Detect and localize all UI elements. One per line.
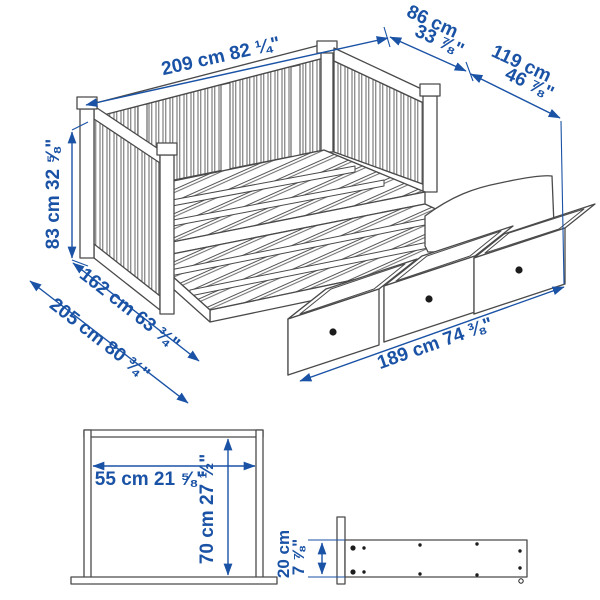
back-wide-slat bbox=[291, 65, 300, 159]
dim-depth: 86 cm 33 ⅞" bbox=[390, 1, 473, 81]
dim-height-label: 83 cm 32 ⅝" bbox=[43, 139, 64, 249]
dim-tick bbox=[72, 260, 88, 266]
back-wide-slat bbox=[221, 83, 230, 173]
back-left-post bbox=[80, 109, 94, 258]
drawer-rail-side-diagram: 20 cm 7 ⅞" bbox=[274, 517, 527, 584]
drawer-knob bbox=[425, 295, 432, 302]
clearance-height-label: 70 cm 27 ½" bbox=[197, 454, 218, 564]
rail-body bbox=[345, 540, 527, 577]
front-right-post bbox=[423, 96, 437, 192]
clearance-width-label: 55 cm 21 ⅝" bbox=[95, 469, 205, 490]
dim-tick bbox=[466, 62, 473, 81]
back-right-post bbox=[321, 52, 333, 152]
front-left-post-cap bbox=[157, 143, 177, 155]
drawer-knob bbox=[515, 266, 522, 273]
rail-end-post bbox=[337, 517, 345, 584]
dim-tick bbox=[384, 27, 390, 47]
caster-dot bbox=[519, 579, 523, 583]
front-right-post-cap bbox=[420, 84, 440, 96]
diagram-canvas: 209 cm 82 ¼" 86 cm 33 ⅞" 119 cm 46 ⅞" 83… bbox=[0, 0, 600, 600]
clearance-left-post bbox=[84, 430, 91, 581]
under-bed-clearance-diagram: 55 cm 21 ⅝" 70 cm 27 ½" bbox=[71, 430, 277, 584]
front-left-post bbox=[160, 155, 174, 314]
clearance-floor-bar bbox=[71, 577, 277, 584]
product-dimension-diagram: 209 cm 82 ¼" 86 cm 33 ⅞" 119 cm 46 ⅞" 83… bbox=[0, 0, 600, 600]
rail-height-label-2: 7 ⅞" bbox=[289, 539, 308, 575]
drawer-knob bbox=[329, 328, 336, 335]
clearance-top-rail bbox=[84, 430, 263, 437]
clearance-right-post bbox=[256, 430, 263, 581]
